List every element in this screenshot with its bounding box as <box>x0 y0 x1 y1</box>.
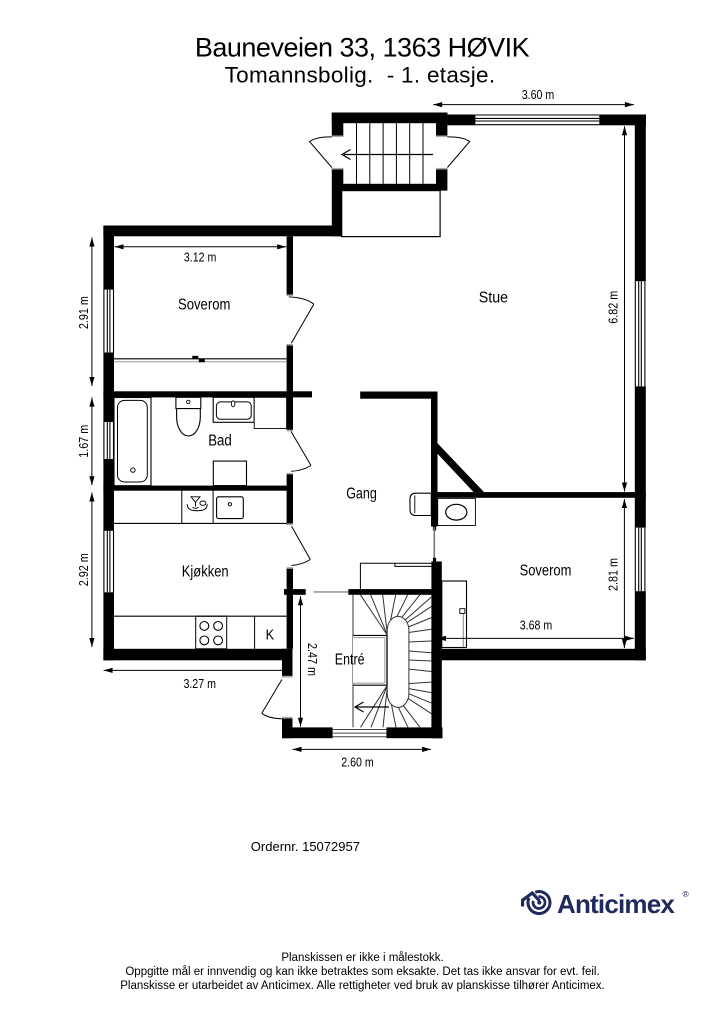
svg-text:Gang: Gang <box>346 486 377 503</box>
svg-text:3.27 m: 3.27 m <box>183 677 216 691</box>
svg-text:Anticimex: Anticimex <box>557 889 675 919</box>
svg-text:2.47 m: 2.47 m <box>305 643 319 676</box>
svg-text:Planskisse er utarbeidet av An: Planskisse er utarbeidet av Anticimex. A… <box>120 980 605 992</box>
svg-text:Soverom: Soverom <box>178 297 230 314</box>
svg-text:3.12 m: 3.12 m <box>184 251 217 265</box>
svg-text:2.81 m: 2.81 m <box>606 558 620 591</box>
svg-text:1.67 m: 1.67 m <box>77 425 91 458</box>
svg-text:K: K <box>266 627 275 644</box>
svg-text:2.91 m: 2.91 m <box>77 296 91 329</box>
svg-text:Ordernr. 15072957: Ordernr. 15072957 <box>251 839 360 854</box>
svg-text:Bad: Bad <box>208 433 232 450</box>
svg-text:Planskissen er ikke i målestok: Planskissen er ikke i målestokk. <box>281 952 443 964</box>
svg-text:6.82 m: 6.82 m <box>606 291 620 324</box>
svg-text:Soverom: Soverom <box>520 562 572 579</box>
svg-text:Stue: Stue <box>479 290 508 307</box>
svg-text:Bauneveien 33, 1363 HØVIK: Bauneveien 33, 1363 HØVIK <box>195 33 530 63</box>
svg-text:2.92 m: 2.92 m <box>77 553 91 586</box>
svg-text:Kjøkken: Kjøkken <box>182 563 229 580</box>
svg-text:3.60 m: 3.60 m <box>522 88 555 102</box>
svg-text:3.68 m: 3.68 m <box>520 619 553 633</box>
svg-text:2.60 m: 2.60 m <box>341 756 374 770</box>
svg-text:Entré: Entré <box>335 652 365 669</box>
svg-text:Oppgitte mål er innvendig og k: Oppgitte mål er innvendig og kan ikke be… <box>125 966 599 978</box>
svg-text:Tomannsbolig. - 1. etasje.: Tomannsbolig. - 1. etasje. <box>225 63 496 88</box>
svg-text:®: ® <box>683 889 690 899</box>
